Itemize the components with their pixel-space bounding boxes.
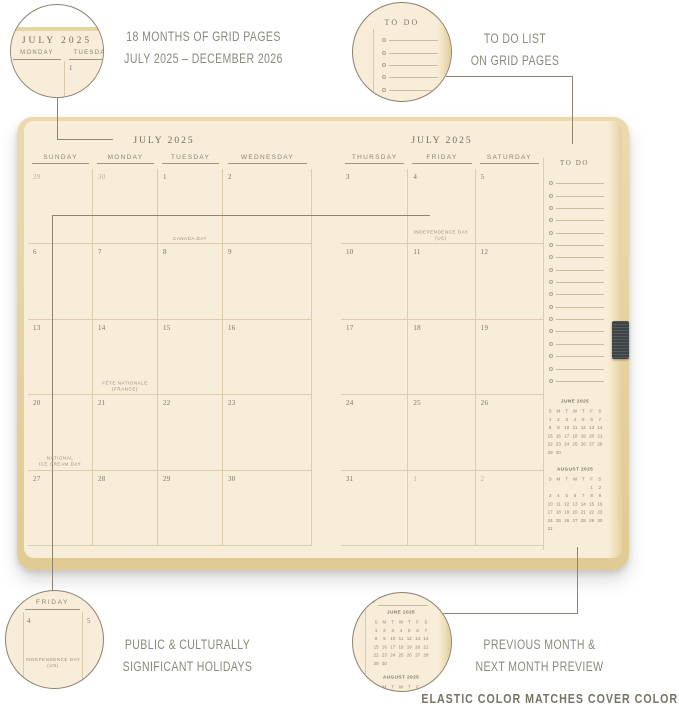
todo-circle-icon (549, 280, 553, 284)
calendar-day-cell: 16 (223, 320, 312, 395)
detail-holiday-label: INDEPENDENCE DAY (US) (5, 657, 104, 669)
todo-row (544, 298, 605, 310)
mini-dow-label: S (372, 683, 380, 691)
mini-day-number (587, 525, 595, 533)
grid-line (23, 612, 24, 688)
todo-circle-icon (371, 599, 375, 603)
mini-day-number: 5 (405, 626, 413, 634)
mini-dow-label: T (563, 407, 571, 415)
footer-caption: ELASTIC COLOR MATCHES COVER COLOR (421, 691, 678, 706)
mini-day-number: 19 (405, 643, 413, 651)
mini-day-number: 21 (596, 432, 604, 440)
todo-rule-line (556, 344, 604, 345)
mini-dow-label: T (389, 683, 397, 691)
todo-rule-line (556, 381, 604, 382)
calendar-day-cell: 5 (476, 169, 543, 244)
day-number: 28 (98, 475, 106, 483)
mini-day-number (596, 525, 604, 533)
page-title-left: JULY 2025 (84, 136, 244, 146)
todo-row (544, 200, 605, 212)
todo-circle-icon (382, 51, 386, 55)
caption-line: TO DO LIST (449, 28, 582, 50)
mini-day-number: 27 (587, 440, 595, 448)
todo-row (544, 323, 605, 335)
mini-day-number (405, 659, 413, 667)
day-number: 15 (163, 324, 171, 332)
mini-calendar-title: JUNE 2025 (372, 608, 430, 618)
mini-day-number: 31 (546, 525, 554, 533)
todo-circle-icon (549, 268, 553, 272)
mini-day-number (389, 691, 397, 692)
mini-calendar-title: AUGUST 2025 (546, 465, 604, 475)
callout-line-todo-v (572, 76, 573, 144)
day-header: WEDNESDAY (223, 154, 312, 169)
day-number: 6 (33, 248, 37, 256)
day-header: SATURDAY (476, 154, 543, 169)
todo-circle-icon (549, 255, 553, 259)
day-number: 7 (98, 248, 102, 256)
todo-row (544, 224, 605, 236)
calendar-day-cell: 4INDEPENDENCE DAY(US) (408, 169, 475, 244)
day-number: 14 (98, 324, 106, 332)
grid-line (82, 612, 83, 688)
grid-line (64, 61, 65, 97)
mini-day-number: 24 (563, 440, 571, 448)
day-number: 16 (228, 324, 236, 332)
day-headers-left: SUNDAYMONDAYTUESDAYWEDNESDAY (28, 154, 312, 169)
detail-circle-todo: TO DO (352, 2, 452, 102)
mini-day-number: 8 (546, 423, 554, 431)
todo-circle-icon (549, 218, 553, 222)
todo-rule-line (556, 196, 604, 197)
month-grid-left: 29301CANADA DAY267891314FÊTE NATIONALE(F… (28, 169, 312, 546)
calendar-day-cell: 20NATIONALICE CREAM DAY (28, 395, 93, 470)
mini-day-number: 3 (389, 626, 397, 634)
mini-calendars: JUNE 2025SMTWTFS123456789101112131415161… (544, 397, 605, 533)
day-number: 31 (346, 475, 354, 483)
day-number: 25 (413, 399, 421, 407)
todo-rule-line (389, 40, 438, 41)
mini-day-number: 4 (397, 626, 405, 634)
calendar-day-cell: 15 (158, 320, 223, 395)
todo-rule-line (389, 53, 438, 54)
mini-day-number (554, 525, 562, 533)
planner-book: JULY 2025 JULY 2025 SUNDAYMONDAYTUESDAYW… (17, 117, 629, 570)
mini-day-number: 25 (397, 651, 405, 659)
todo-circle-icon (549, 194, 553, 198)
day-header-label: SATURDAY (480, 154, 539, 164)
day-header-label: SUNDAY (32, 154, 89, 164)
todo-circle-icon (549, 317, 553, 321)
day-number: 2 (481, 475, 485, 483)
mini-day-number (413, 659, 421, 667)
calendar-day-cell: 29 (158, 471, 223, 546)
todo-circle-icon (382, 88, 386, 92)
calendar-day-cell: 2 (223, 169, 312, 244)
caption-line: PREVIOUS MONTH & (471, 634, 608, 656)
calendar-day-cell: 18 (408, 320, 475, 395)
todo-row (377, 44, 439, 56)
caption-line: PUBLIC & CULTURALLY (119, 634, 256, 656)
mini-dow-label: W (571, 407, 579, 415)
calendar-day-cell: 1CANADA DAY (158, 169, 223, 244)
detail-circle-month-preview: JUNE 2025SMTWTFS123456789101112131415161… (352, 592, 452, 692)
planner-pages: JULY 2025 JULY 2025 SUNDAYMONDAYTUESDAYW… (24, 121, 622, 558)
mini-calendar-grid: SMTWTFS123456789101112131415161718192021… (546, 475, 604, 533)
todo-rule-line (556, 369, 604, 370)
mini-day-number: 11 (397, 635, 405, 643)
mini-day-number: 18 (571, 432, 579, 440)
day-number: 13 (33, 324, 41, 332)
todo-rule-line (556, 331, 604, 332)
mini-day-number (571, 525, 579, 533)
day-number: 19 (481, 324, 489, 332)
month-grid-right: 34INDEPENDENCE DAY(US)510111217181924252… (341, 169, 543, 546)
todo-rule-line (556, 208, 604, 209)
mini-day-number: 3 (563, 415, 571, 423)
caption-grid-pages: 18 MONTHS OF GRID PAGES JULY 2025 – DECE… (120, 26, 288, 69)
calendar-day-cell: 21 (93, 395, 158, 470)
todo-row (544, 237, 605, 249)
day-number: 26 (481, 399, 489, 407)
calendar-day-cell: 23 (223, 395, 312, 470)
day-header-label: MONDAY (97, 154, 154, 164)
day-number: 27 (33, 475, 41, 483)
todo-rule-line (556, 257, 604, 258)
todo-circle-icon (382, 75, 386, 79)
calendar-day-cell: 28 (93, 471, 158, 546)
day-number: 30 (228, 475, 236, 483)
day-number: 21 (98, 399, 106, 407)
day-header: MONDAY (93, 154, 158, 169)
todo-circle-icon (549, 206, 553, 210)
mini-day-number: 16 (554, 432, 562, 440)
todo-checklist (544, 175, 605, 385)
mini-day-number (596, 448, 604, 456)
mini-calendar-august-2025: AUGUST 2025SMTWTFS1234567891011121314151… (546, 465, 604, 533)
calendar-day-cell: 8 (158, 244, 223, 319)
todo-rule-line (378, 605, 428, 606)
calendar-day-cell: 24 (341, 395, 408, 470)
mini-day-number: 23 (554, 440, 562, 448)
mini-day-number: 24 (389, 651, 397, 659)
day-number: 29 (33, 173, 41, 181)
mini-calendar-june-2025: JUNE 2025SMTWTFS123456789101112131415161… (546, 397, 604, 457)
calendar-day-cell: 29 (28, 169, 93, 244)
todo-header: TO DO (544, 158, 605, 172)
todo-rule-line (556, 270, 604, 271)
todo-row (544, 335, 605, 347)
mini-day-number (571, 448, 579, 456)
day-number: 23 (228, 399, 236, 407)
mini-day-number: 7 (422, 626, 430, 634)
calendar-day-cell: 2 (476, 471, 543, 546)
day-header: FRIDAY (408, 154, 475, 169)
callout-line-grid-pages-h (57, 139, 113, 140)
todo-rule-line (556, 220, 604, 221)
mini-calendar-grid: SMTWTFS123456789101112131415161718192021… (546, 407, 604, 457)
mini-day-number (397, 691, 405, 692)
mini-day-number (563, 525, 571, 533)
caption-todo: TO DO LIST ON GRID PAGES (449, 28, 582, 71)
mini-day-number: 2 (554, 415, 562, 423)
calendar-day-cell: 6 (28, 244, 93, 319)
callout-line-preview-h (443, 613, 578, 614)
detail-day-number: 4 (27, 617, 31, 625)
mini-day-number: 29 (372, 659, 380, 667)
calendar-day-cell: 1 (408, 471, 475, 546)
calendar-day-cell: 9 (223, 244, 312, 319)
mini-day-number: 17 (563, 432, 571, 440)
mini-day-number (380, 691, 388, 692)
mini-day-number: 17 (389, 643, 397, 651)
todo-rule-line (556, 282, 604, 283)
todo-circle-icon (549, 367, 553, 371)
mini-calendar: AUGUST 2025SMTWTFS1234567891011121314151… (546, 465, 604, 533)
day-number: 2 (228, 173, 232, 181)
todo-circle-icon (382, 63, 386, 67)
mini-calendar-grid: SMTWTFS123456789101112131415161718192021… (372, 618, 430, 668)
todo-circle-icon (549, 305, 553, 309)
mini-dow-label: S (372, 618, 380, 626)
day-number: 5 (481, 173, 485, 181)
todo-row (377, 94, 439, 102)
day-number: 17 (346, 324, 354, 332)
mini-day-number: 9 (380, 635, 388, 643)
mini-day-number: 10 (389, 635, 397, 643)
calendar-day-cell: 30 (223, 471, 312, 546)
mini-day-number: 27 (413, 651, 421, 659)
mini-dow-label: M (554, 407, 562, 415)
mini-day-number: 8 (372, 635, 380, 643)
caption-preview: PREVIOUS MONTH & NEXT MONTH PREVIEW (471, 634, 608, 677)
caption-line: SIGNIFICANT HOLIDAYS (119, 656, 256, 678)
grid-line (373, 29, 374, 101)
detail-circle-grid-pages: JULY 2025 MONDAY TUESDAY 1 (10, 4, 104, 98)
mini-day-number: 6 (413, 626, 421, 634)
mini-day-number: 1 (372, 626, 380, 634)
mini-dow-label: T (389, 618, 397, 626)
mini-day-number: 13 (413, 635, 421, 643)
detail-mini-calendars: JUNE 2025SMTWTFS123456789101112131415161… (372, 608, 434, 692)
calendar-day-cell: 25 (408, 395, 475, 470)
todo-row (544, 286, 605, 298)
mini-day-number: 21 (422, 643, 430, 651)
mini-day-number: 9 (554, 423, 562, 431)
todo-rule-line (556, 245, 604, 246)
mini-day-number: 18 (397, 643, 405, 651)
mini-day-number: 28 (596, 440, 604, 448)
calendar-day-cell: 22 (158, 395, 223, 470)
mini-calendar: AUGUST 2025SMTWTFS1234567891011121314151… (372, 673, 430, 693)
day-number: 10 (346, 248, 354, 256)
todo-row (544, 175, 605, 187)
day-number: 4 (413, 173, 417, 181)
mini-day-number: 10 (563, 423, 571, 431)
mini-day-number: 19 (579, 432, 587, 440)
mini-dow-label: W (397, 618, 405, 626)
day-number: 3 (346, 173, 350, 181)
page-edge-stack (437, 3, 451, 101)
mini-dow-label: F (413, 683, 421, 691)
mini-day-number: 4 (571, 415, 579, 423)
page-title-right: JULY 2025 (362, 136, 522, 146)
detail-day-header-monday: MONDAY (13, 50, 61, 60)
mini-day-number: 20 (413, 643, 421, 651)
mini-dow-label: S (596, 407, 604, 415)
day-number: 11 (413, 248, 420, 256)
mini-day-number (579, 448, 587, 456)
calendar-day-cell: 17 (341, 320, 408, 395)
todo-row (544, 261, 605, 273)
todo-circle-icon (549, 329, 553, 333)
caption-line: 18 MONTHS OF GRID PAGES (120, 26, 288, 48)
caption-line: NEXT MONTH PREVIEW (471, 656, 608, 678)
mini-calendar: JUNE 2025SMTWTFS123456789101112131415161… (546, 397, 604, 457)
mini-day-number: 5 (579, 415, 587, 423)
mini-dow-label: M (380, 618, 388, 626)
day-number: 24 (346, 399, 354, 407)
day-header: SUNDAY (28, 154, 93, 169)
mini-day-number: 13 (587, 423, 595, 431)
mini-day-number: 6 (587, 415, 595, 423)
caption-line: JULY 2025 – DECEMBER 2026 (120, 48, 288, 70)
todo-row (544, 274, 605, 286)
mini-day-number (563, 448, 571, 456)
todo-row (377, 81, 439, 93)
mini-calendar-title: JUNE 2025 (546, 397, 604, 407)
todo-circle-icon (382, 100, 386, 102)
mini-dow-label: W (397, 683, 405, 691)
callout-line-holidays-h (52, 215, 430, 216)
day-number: 22 (163, 399, 171, 407)
mini-day-number: 7 (596, 415, 604, 423)
todo-rule-line (389, 65, 438, 66)
mini-day-number: 22 (546, 440, 554, 448)
callout-line-holidays-v (52, 215, 53, 592)
mini-dow-label: T (405, 683, 413, 691)
detail-circle-holidays: FRIDAY 4 5 INDEPENDENCE DAY (US) (5, 590, 104, 689)
day-number: 20 (33, 399, 41, 407)
todo-rule-line (389, 90, 438, 91)
calendar-day-cell: 19 (476, 320, 543, 395)
mini-day-number: 15 (372, 643, 380, 651)
day-number: 8 (163, 248, 167, 256)
mini-calendar-august-2025: AUGUST 2025SMTWTFS1234567891011121314151… (372, 673, 430, 693)
elastic-pen-loop (612, 321, 629, 359)
day-header-label: THURSDAY (345, 154, 404, 164)
day-headers-right: THURSDAYFRIDAYSATURDAY (341, 154, 543, 169)
calendar-day-cell: 7 (93, 244, 158, 319)
day-header-label: WEDNESDAY (228, 154, 306, 164)
caption-line: ON GRID PAGES (449, 50, 582, 72)
mini-day-number: 30 (380, 659, 388, 667)
detail-todo-checklist (377, 32, 439, 102)
mini-dow-label: S (422, 683, 430, 691)
page-edge-stack (438, 593, 451, 691)
day-number: 9 (228, 248, 232, 256)
todo-rule-line (389, 77, 438, 78)
calendar-day-cell: 10 (341, 244, 408, 319)
calendar-day-cell: 12 (476, 244, 543, 319)
mini-dow-label: T (579, 407, 587, 415)
mini-day-number: 14 (596, 423, 604, 431)
mini-day-number: 14 (422, 635, 430, 643)
mini-day-number: 12 (579, 423, 587, 431)
mini-day-number: 26 (405, 651, 413, 659)
mini-day-number: 26 (579, 440, 587, 448)
mini-day-number (397, 659, 405, 667)
todo-circle-icon (549, 231, 553, 235)
todo-row (544, 249, 605, 261)
day-number: 1 (163, 173, 167, 181)
mini-day-number: 25 (571, 440, 579, 448)
calendar-day-cell: 14FÊTE NATIONALE(FRANCE) (93, 320, 158, 395)
mini-calendar: JUNE 2025SMTWTFS123456789101112131415161… (372, 608, 430, 668)
day-header: TUESDAY (158, 154, 223, 169)
mini-day-number: 22 (372, 651, 380, 659)
planner-feature-infographic: 18 MONTHS OF GRID PAGES JULY 2025 – DECE… (0, 0, 679, 710)
todo-row (544, 360, 605, 372)
todo-row (377, 69, 439, 81)
calendar-day-cell: 31 (341, 471, 408, 546)
todo-rule-line (556, 294, 604, 295)
day-number: 30 (98, 173, 106, 181)
day-number: 29 (163, 475, 171, 483)
todo-circle-icon (549, 342, 553, 346)
mini-dow-label: M (380, 683, 388, 691)
todo-circle-icon (549, 354, 553, 358)
todo-row (544, 212, 605, 224)
mini-dow-label: F (587, 407, 595, 415)
callout-line-preview-v (577, 547, 578, 613)
todo-row (544, 373, 605, 385)
detail-day-header-friday: FRIDAY (25, 599, 80, 610)
caption-holidays: PUBLIC & CULTURALLY SIGNIFICANT HOLIDAYS (119, 634, 256, 677)
todo-row (544, 348, 605, 360)
mini-day-number (422, 659, 430, 667)
mini-dow-label: T (405, 618, 413, 626)
mini-day-number: 2 (380, 626, 388, 634)
day-header: THURSDAY (341, 154, 408, 169)
mini-day-number: 29 (546, 448, 554, 456)
todo-rule-line (556, 319, 604, 320)
grid-line (365, 593, 366, 691)
todo-circle-icon (382, 38, 386, 42)
calendar-day-cell: 27 (28, 471, 93, 546)
callout-line-grid-pages-v (57, 98, 58, 139)
mini-day-number (372, 691, 380, 692)
todo-circle-icon (549, 292, 553, 296)
mini-day-number: 16 (380, 643, 388, 651)
mini-day-number (389, 659, 397, 667)
detail-day-number: 5 (87, 617, 91, 625)
calendar-day-cell: 26 (476, 395, 543, 470)
todo-rule-line (556, 233, 604, 234)
todo-row (544, 311, 605, 323)
todo-rule-line (556, 307, 604, 308)
todo-row (377, 32, 439, 44)
mini-calendar-title: AUGUST 2025 (372, 673, 430, 683)
mini-calendar-grid: SMTWTFS123456789101112131415161718192021… (372, 683, 430, 693)
todo-row (377, 57, 439, 69)
mini-day-number: 28 (422, 651, 430, 659)
mini-dow-label: S (422, 618, 430, 626)
mini-day-number: 15 (546, 432, 554, 440)
mini-day-number (579, 525, 587, 533)
callout-line-todo-h (446, 76, 573, 77)
calendar-day-cell: 11 (408, 244, 475, 319)
